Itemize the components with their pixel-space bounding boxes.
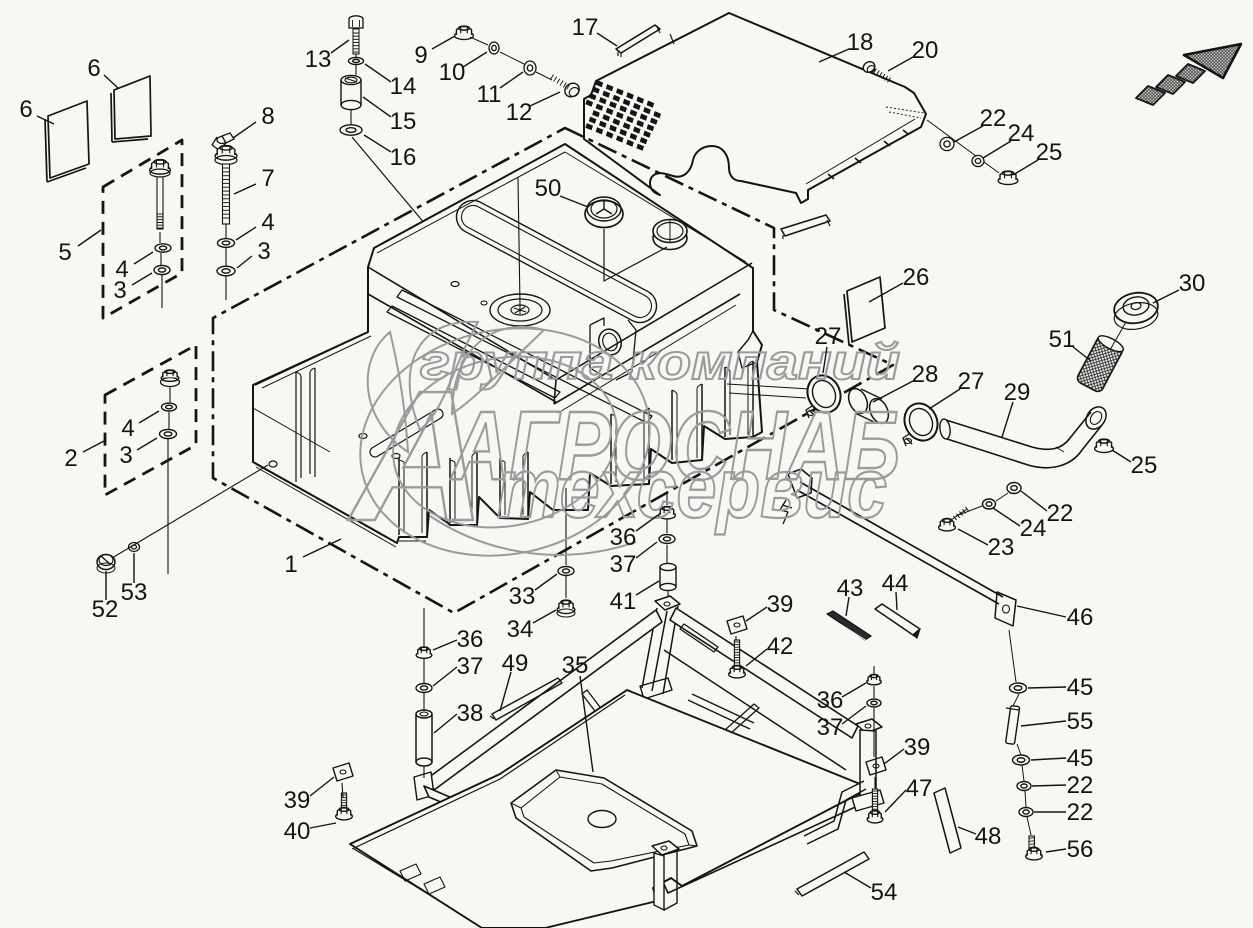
svg-text:14: 14 bbox=[390, 73, 417, 100]
svg-text:7: 7 bbox=[261, 165, 274, 192]
svg-text:5: 5 bbox=[58, 239, 71, 266]
svg-text:25: 25 bbox=[1131, 452, 1158, 479]
svg-text:27: 27 bbox=[815, 323, 842, 350]
svg-text:4: 4 bbox=[121, 415, 134, 442]
svg-text:13: 13 bbox=[305, 46, 332, 73]
svg-text:11: 11 bbox=[477, 81, 502, 108]
svg-text:22: 22 bbox=[1067, 772, 1094, 799]
svg-text:37: 37 bbox=[817, 714, 844, 741]
svg-text:24: 24 bbox=[1008, 120, 1035, 147]
svg-text:10: 10 bbox=[439, 59, 466, 86]
svg-text:29: 29 bbox=[1004, 379, 1031, 406]
svg-text:37: 37 bbox=[457, 653, 484, 680]
svg-text:37: 37 bbox=[610, 551, 637, 578]
svg-text:36: 36 bbox=[457, 626, 484, 653]
svg-text:9: 9 bbox=[414, 42, 427, 69]
svg-text:51: 51 bbox=[1049, 326, 1076, 353]
svg-text:36: 36 bbox=[817, 687, 844, 714]
svg-text:52: 52 bbox=[92, 596, 119, 623]
svg-text:49: 49 bbox=[502, 650, 529, 677]
svg-text:8: 8 bbox=[261, 103, 274, 130]
svg-text:34: 34 bbox=[507, 616, 534, 643]
svg-text:18: 18 bbox=[847, 29, 874, 56]
svg-text:4: 4 bbox=[261, 209, 274, 236]
svg-text:54: 54 bbox=[871, 879, 898, 906]
svg-text:43: 43 bbox=[837, 575, 864, 602]
svg-text:16: 16 bbox=[390, 144, 417, 171]
svg-text:23: 23 bbox=[988, 534, 1015, 561]
svg-text:41: 41 bbox=[610, 588, 637, 615]
svg-text:20: 20 bbox=[912, 37, 939, 64]
svg-text:35: 35 bbox=[562, 652, 589, 679]
svg-text:48: 48 bbox=[975, 823, 1002, 850]
svg-text:техсервис: техсервис bbox=[497, 441, 887, 535]
svg-text:39: 39 bbox=[767, 591, 794, 618]
svg-text:1: 1 bbox=[284, 551, 297, 578]
svg-text:3: 3 bbox=[257, 238, 270, 265]
svg-text:2: 2 bbox=[64, 445, 77, 472]
svg-text:40: 40 bbox=[284, 818, 311, 845]
svg-text:22: 22 bbox=[1067, 799, 1094, 826]
svg-text:33: 33 bbox=[509, 583, 536, 610]
svg-text:38: 38 bbox=[457, 700, 484, 727]
svg-text:53: 53 bbox=[121, 579, 148, 606]
svg-text:36: 36 bbox=[610, 524, 637, 551]
svg-text:39: 39 bbox=[284, 787, 311, 814]
svg-text:17: 17 bbox=[572, 14, 599, 41]
svg-text:3: 3 bbox=[113, 277, 126, 304]
svg-text:22: 22 bbox=[980, 105, 1007, 132]
svg-text:6: 6 bbox=[87, 55, 100, 82]
svg-text:45: 45 bbox=[1067, 674, 1094, 701]
svg-text:46: 46 bbox=[1067, 604, 1094, 631]
svg-text:39: 39 bbox=[904, 734, 931, 761]
svg-text:47: 47 bbox=[906, 775, 933, 802]
svg-text:28: 28 bbox=[912, 361, 939, 388]
svg-text:25: 25 bbox=[1036, 139, 1063, 166]
svg-text:30: 30 bbox=[1179, 270, 1206, 297]
svg-text:50: 50 bbox=[535, 175, 562, 202]
svg-text:26: 26 bbox=[903, 264, 930, 291]
svg-text:56: 56 bbox=[1067, 836, 1094, 863]
svg-text:12: 12 bbox=[506, 99, 533, 126]
svg-text:3: 3 bbox=[119, 442, 132, 469]
svg-text:6: 6 bbox=[19, 96, 32, 123]
svg-text:15: 15 bbox=[390, 108, 417, 135]
svg-text:27: 27 bbox=[958, 368, 985, 395]
svg-text:42: 42 bbox=[767, 633, 794, 660]
svg-text:45: 45 bbox=[1067, 745, 1094, 772]
svg-text:44: 44 bbox=[882, 570, 909, 597]
svg-text:55: 55 bbox=[1067, 708, 1094, 735]
svg-text:22: 22 bbox=[1047, 500, 1074, 527]
svg-text:24: 24 bbox=[1020, 515, 1047, 542]
